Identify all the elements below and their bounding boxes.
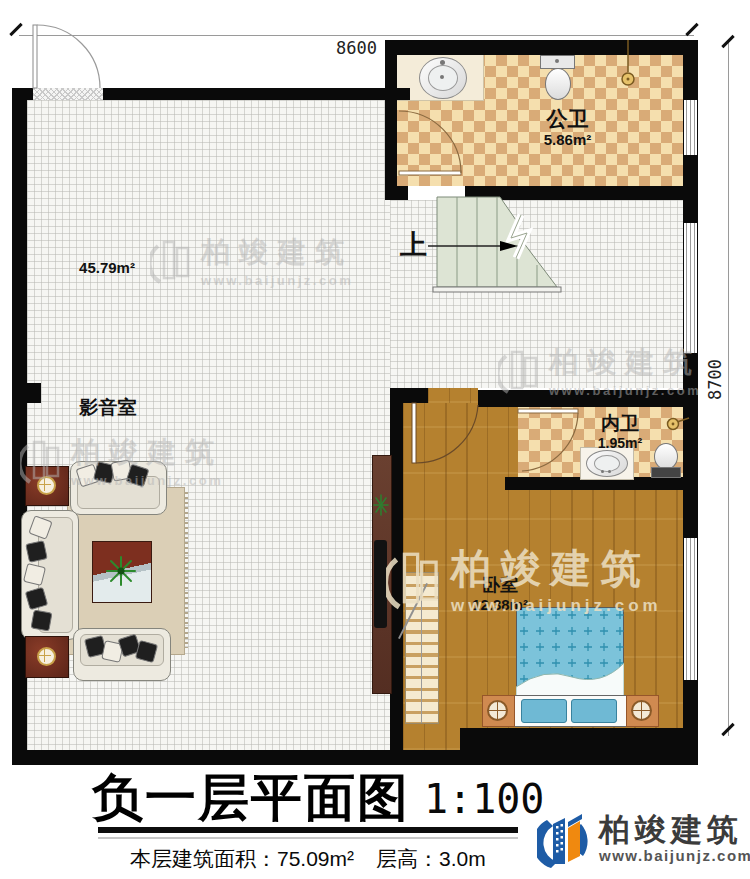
dimension-top-label: 8600 [336,38,377,58]
wall [478,390,683,407]
lamp-cross [641,702,642,719]
sink-basin [594,455,620,472]
room-name: 内卫 [582,413,658,435]
room-name: 公卫 [515,107,620,131]
window [684,223,697,353]
lamp-cross [497,702,498,719]
tv [374,540,387,628]
bedroom-door-threshold [428,388,478,403]
bed-pillow [521,699,567,723]
table-lamp-icon [37,647,56,666]
floor-info: 本层建筑面积：75.09m²层高：3.0m [130,845,508,873]
room-area: 5.86m² [515,131,620,148]
title-rule-thin [98,837,518,839]
stairs-up-label: 上 [400,227,427,263]
wall [388,40,698,55]
dimension-right-label: 8700 [705,359,725,400]
lamp-cross [44,478,45,491]
room-name: 影音室 [58,397,158,419]
bed-pillow [571,699,617,723]
faucet-dot [601,470,604,473]
brand-logo: 柏竣建筑 www.baijunjz.com [537,806,750,872]
brand-name: 柏竣建筑 [599,814,743,847]
window [684,100,697,155]
stair-hall-floor [390,200,683,388]
faucet-dot [608,470,611,473]
rug-fringe [184,492,188,648]
floor-height-text: 层高：3.0m [376,847,486,870]
media-room-area-label: 45.79m² [62,259,152,276]
plan-scale: 1:100 [424,776,544,822]
wall [103,88,410,100]
dimension-line-top [19,35,694,36]
media-room-name-label: 影音室 [58,397,158,419]
toilet-icon [545,68,571,100]
brand-url: www.baijunjz.com [599,847,750,864]
drain-dot [440,75,444,79]
wall [390,388,428,403]
brand-logo-icon [537,806,591,872]
public-bathroom-label: 公卫 5.86m² [515,107,620,148]
title-rule-thick [98,827,518,833]
wall [12,88,33,100]
inner-bathroom-label: 内卫 1.95m² [582,413,658,451]
toilet-base [651,467,681,478]
room-area: 45.79m² [62,259,152,276]
pillow [30,609,52,631]
bedroom-label: 卧室 12.38m² [455,575,545,613]
toilet-button [555,59,559,63]
coffee-table [92,541,152,603]
lamp-cross [44,649,45,662]
window [684,538,697,680]
entry-threshold [33,88,103,100]
wall [12,750,698,765]
plan-title: 负一层平面图 [92,764,410,833]
faucet-dot [440,60,445,65]
wall [385,40,397,200]
wall [397,186,408,200]
wall [465,186,683,200]
floor-plan-canvas: 8600 8700 [0,0,750,879]
dimension-line-right [728,42,729,736]
floor-area-text: 本层建筑面积：75.09m² [130,847,354,870]
room-name: 卧室 [455,575,545,596]
table-lamp-icon [37,476,56,495]
room-area: 12.38m² [455,596,545,613]
wall [460,728,683,750]
wall-pier [27,383,41,403]
pillow [25,540,48,563]
room-area: 1.95m² [582,435,658,451]
